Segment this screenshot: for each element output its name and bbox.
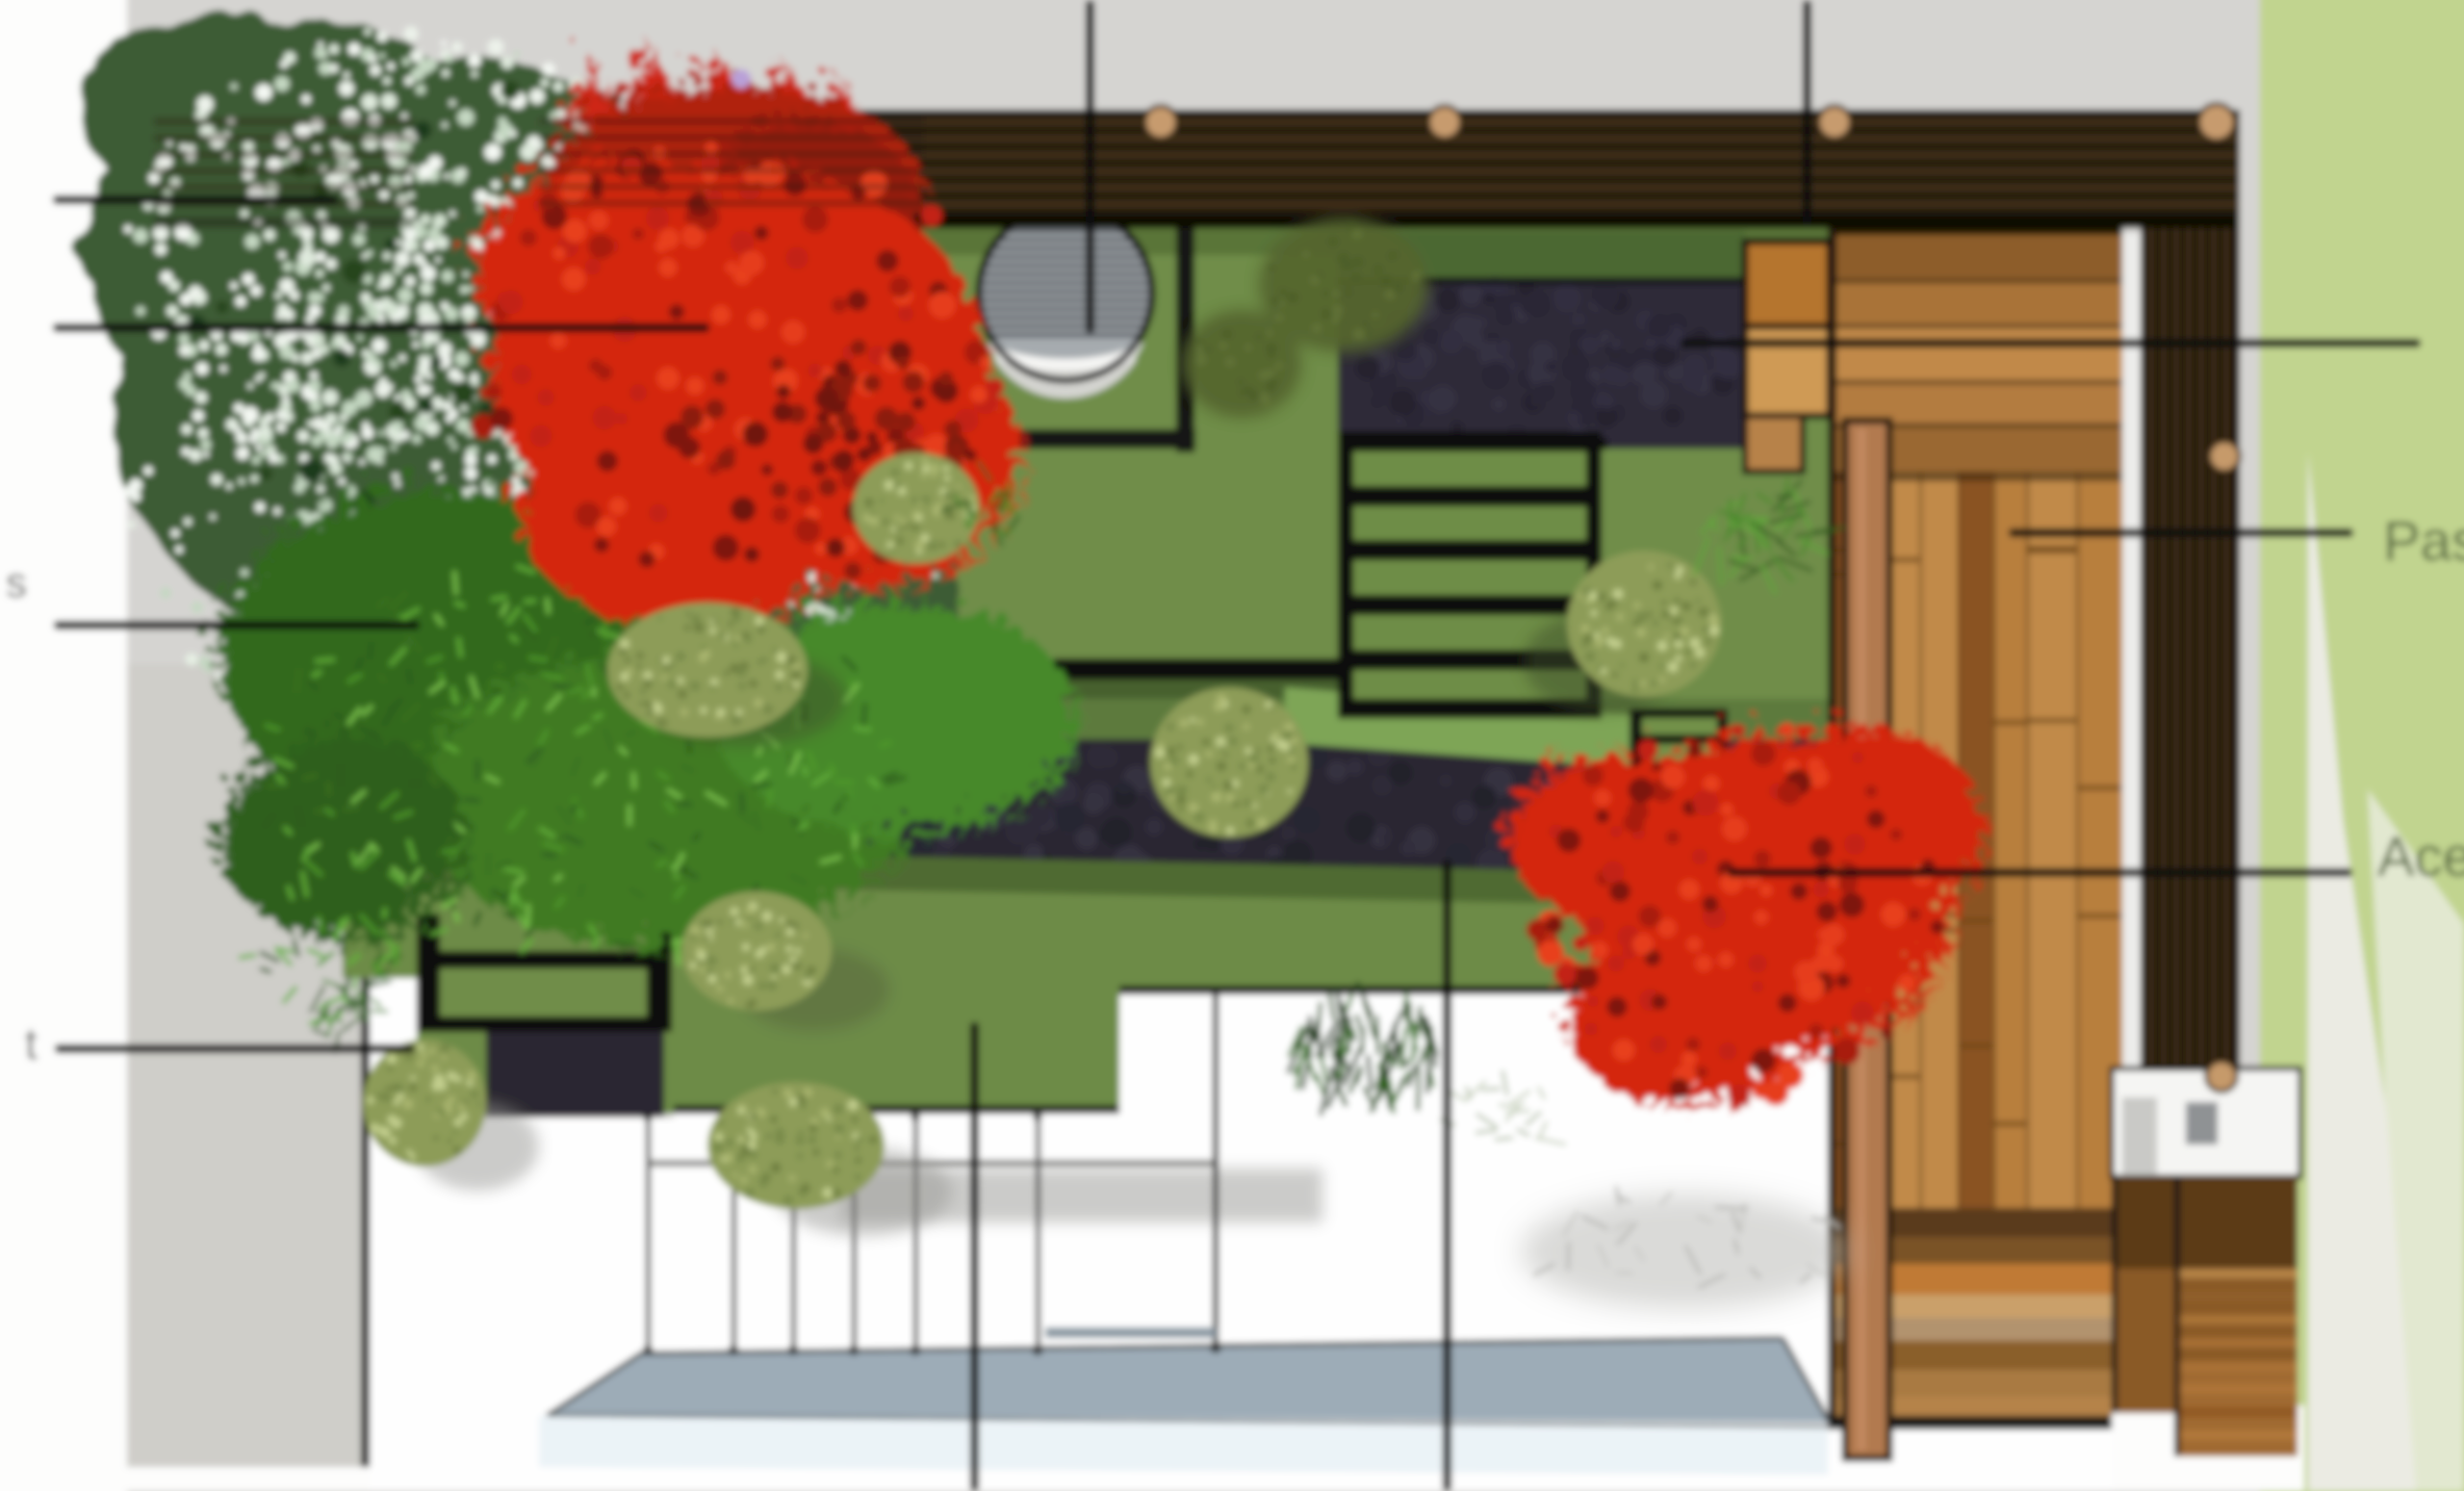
svg-text:t: t [25,1018,38,1068]
svg-text:Pas: Pas [2383,510,2464,573]
svg-text:s: s [6,559,27,606]
svg-text:Ace: Ace [2377,826,2464,888]
